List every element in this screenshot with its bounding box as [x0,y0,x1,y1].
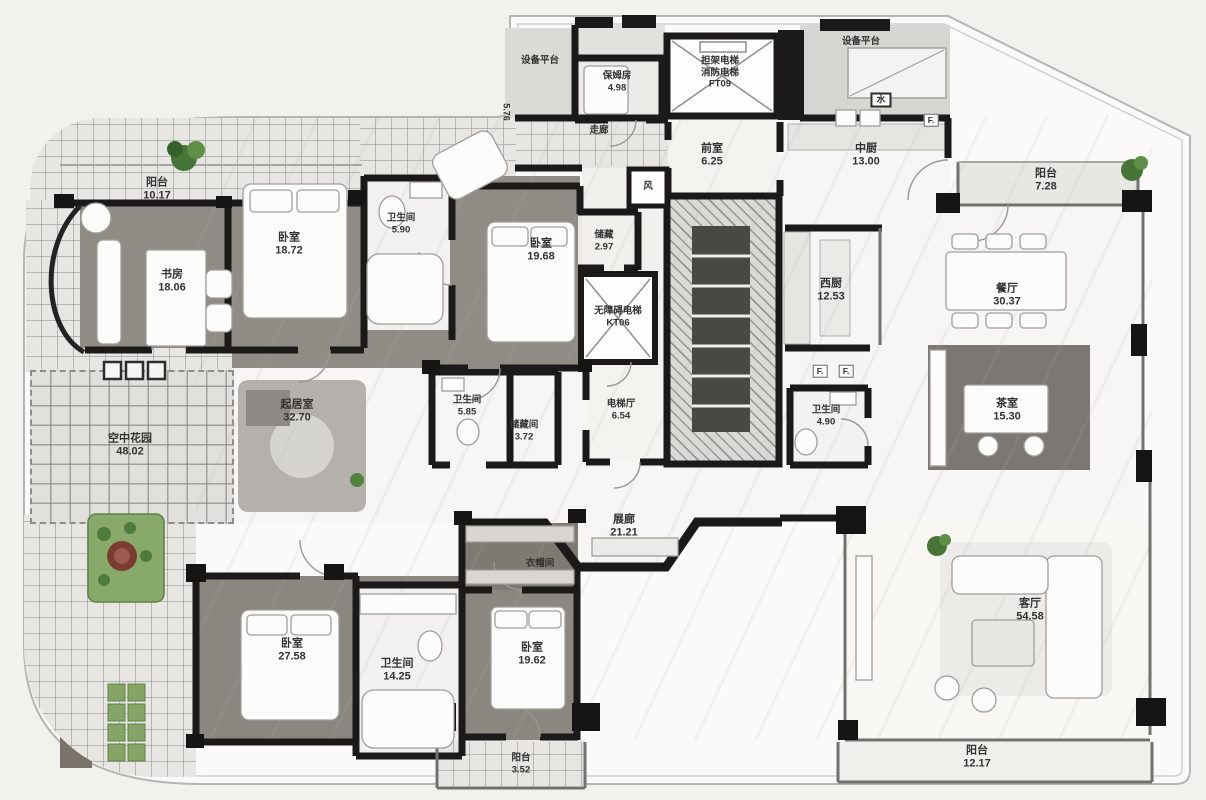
label-fridge: F. [813,365,828,378]
room-label-bedroom3: 卧室27.58 [278,638,306,665]
room-label-bedroom2: 卧室19.68 [527,238,555,265]
label-water-riser: 水 [870,93,891,108]
furniture [81,66,1102,748]
room-label-gallery: 展廊21.21 [610,514,638,541]
wall-study-curve [51,206,84,352]
balcony-rails [60,162,1138,165]
label-elevator-ft09: 担架电梯消防电梯FT09 [701,56,739,91]
room-label-nanny: 保姆房4.98 [603,70,632,93]
floor-plan: 设备平台 保姆房4.98 担架电梯消防电梯FT09 设备平台 水 走廊 5.76… [0,0,1206,800]
room-label-bath2: 卫生间5.85 [453,394,482,417]
room-label-balcony-tr: 阳台7.28 [1035,168,1057,195]
label-vent: 风 [643,181,653,193]
room-label-balcony-br: 阳台12.17 [963,745,991,772]
stair-core [667,196,779,464]
label-platform-left: 设备平台 [521,55,559,67]
room-label-balcony-bc: 阳台3.52 [511,752,530,775]
room-label-bath4: 卫生间14.25 [381,658,414,685]
room-label-study: 书房18.06 [158,269,186,296]
room-label-sky-garden: 空中花园48.02 [108,433,152,460]
room-label-kitchen-cn: 中厨13.00 [852,143,880,170]
room-label-bedroom1: 卧室18.72 [275,232,303,259]
room-label-storage1: 储藏2.97 [594,229,613,252]
room-label-tea: 茶室15.30 [993,398,1021,425]
utility-boxes [104,362,165,379]
room-label-dining: 餐厅30.37 [993,283,1021,310]
service-shaft [778,30,804,120]
room-label-cloakroom: 衣帽间 [526,558,555,570]
room-label-corridor: 走廊 [589,125,608,137]
room-label-kitchen-w: 西厨12.53 [817,278,845,305]
label-fridge-top: F. [924,114,939,127]
room-label-bedroom4: 卧室19.62 [518,642,546,669]
label-corridor-area: 5.76 [501,103,512,121]
room-label-vestibule: 前室6.25 [701,143,723,170]
room-label-balcony-tl: 阳台10.17 [143,177,171,204]
wall-bar-2 [622,15,656,28]
label-freezer: F. [839,365,854,378]
room-label-living: 客厅54.58 [1016,598,1044,625]
label-elevator-kt06: 无障碍电梯KT06 [594,305,642,328]
room-label-family: 起居室32.70 [281,399,314,426]
walls-layer [0,0,1206,800]
room-label-lift-hall: 电梯厅6.54 [607,398,636,421]
room-label-bath3: 卫生间4.90 [812,404,841,427]
room-label-bath1: 卫生间5.90 [387,212,416,235]
room-label-storage2: 储藏间3.72 [510,419,539,442]
wall-bar-1 [575,17,613,28]
label-platform-right: 设备平台 [842,36,880,48]
wall-bar-3 [820,19,890,31]
